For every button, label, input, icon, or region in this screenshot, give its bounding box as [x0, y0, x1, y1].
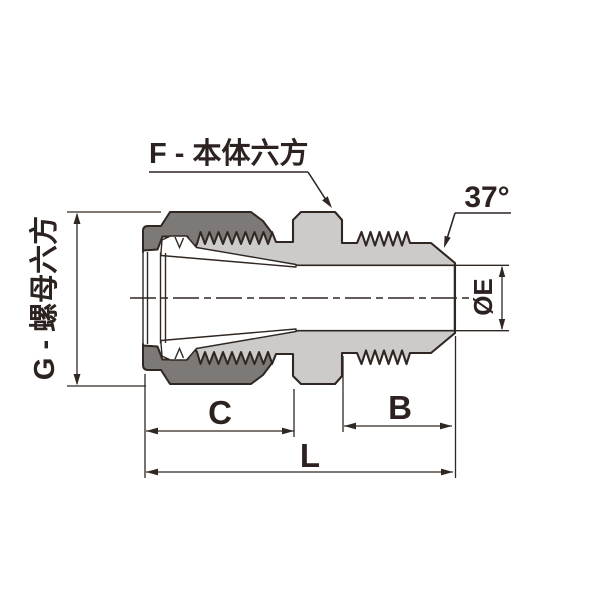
technical-drawing-tube-fitting: F - 本体六方 37° G - 螺母六方 ØE C: [0, 0, 600, 600]
dim-label-b: B: [388, 389, 412, 426]
leader-arrow: [322, 196, 332, 208]
dim-label-c: C: [208, 394, 232, 431]
end-diameter-label: ØE: [468, 278, 498, 316]
leader-arrow: [444, 236, 451, 248]
callout-body-hex: F - 本体六方: [149, 136, 332, 208]
flare-angle-label: 37°: [464, 181, 509, 214]
nut-hex-label: G - 螺母六方: [27, 216, 61, 380]
dim-label-l: L: [300, 437, 320, 474]
callout-flare-angle: 37°: [444, 181, 511, 248]
fitting-cross-section-svg: F - 本体六方 37° G - 螺母六方 ØE C: [0, 0, 600, 600]
body-hex-label: F - 本体六方: [149, 136, 309, 170]
